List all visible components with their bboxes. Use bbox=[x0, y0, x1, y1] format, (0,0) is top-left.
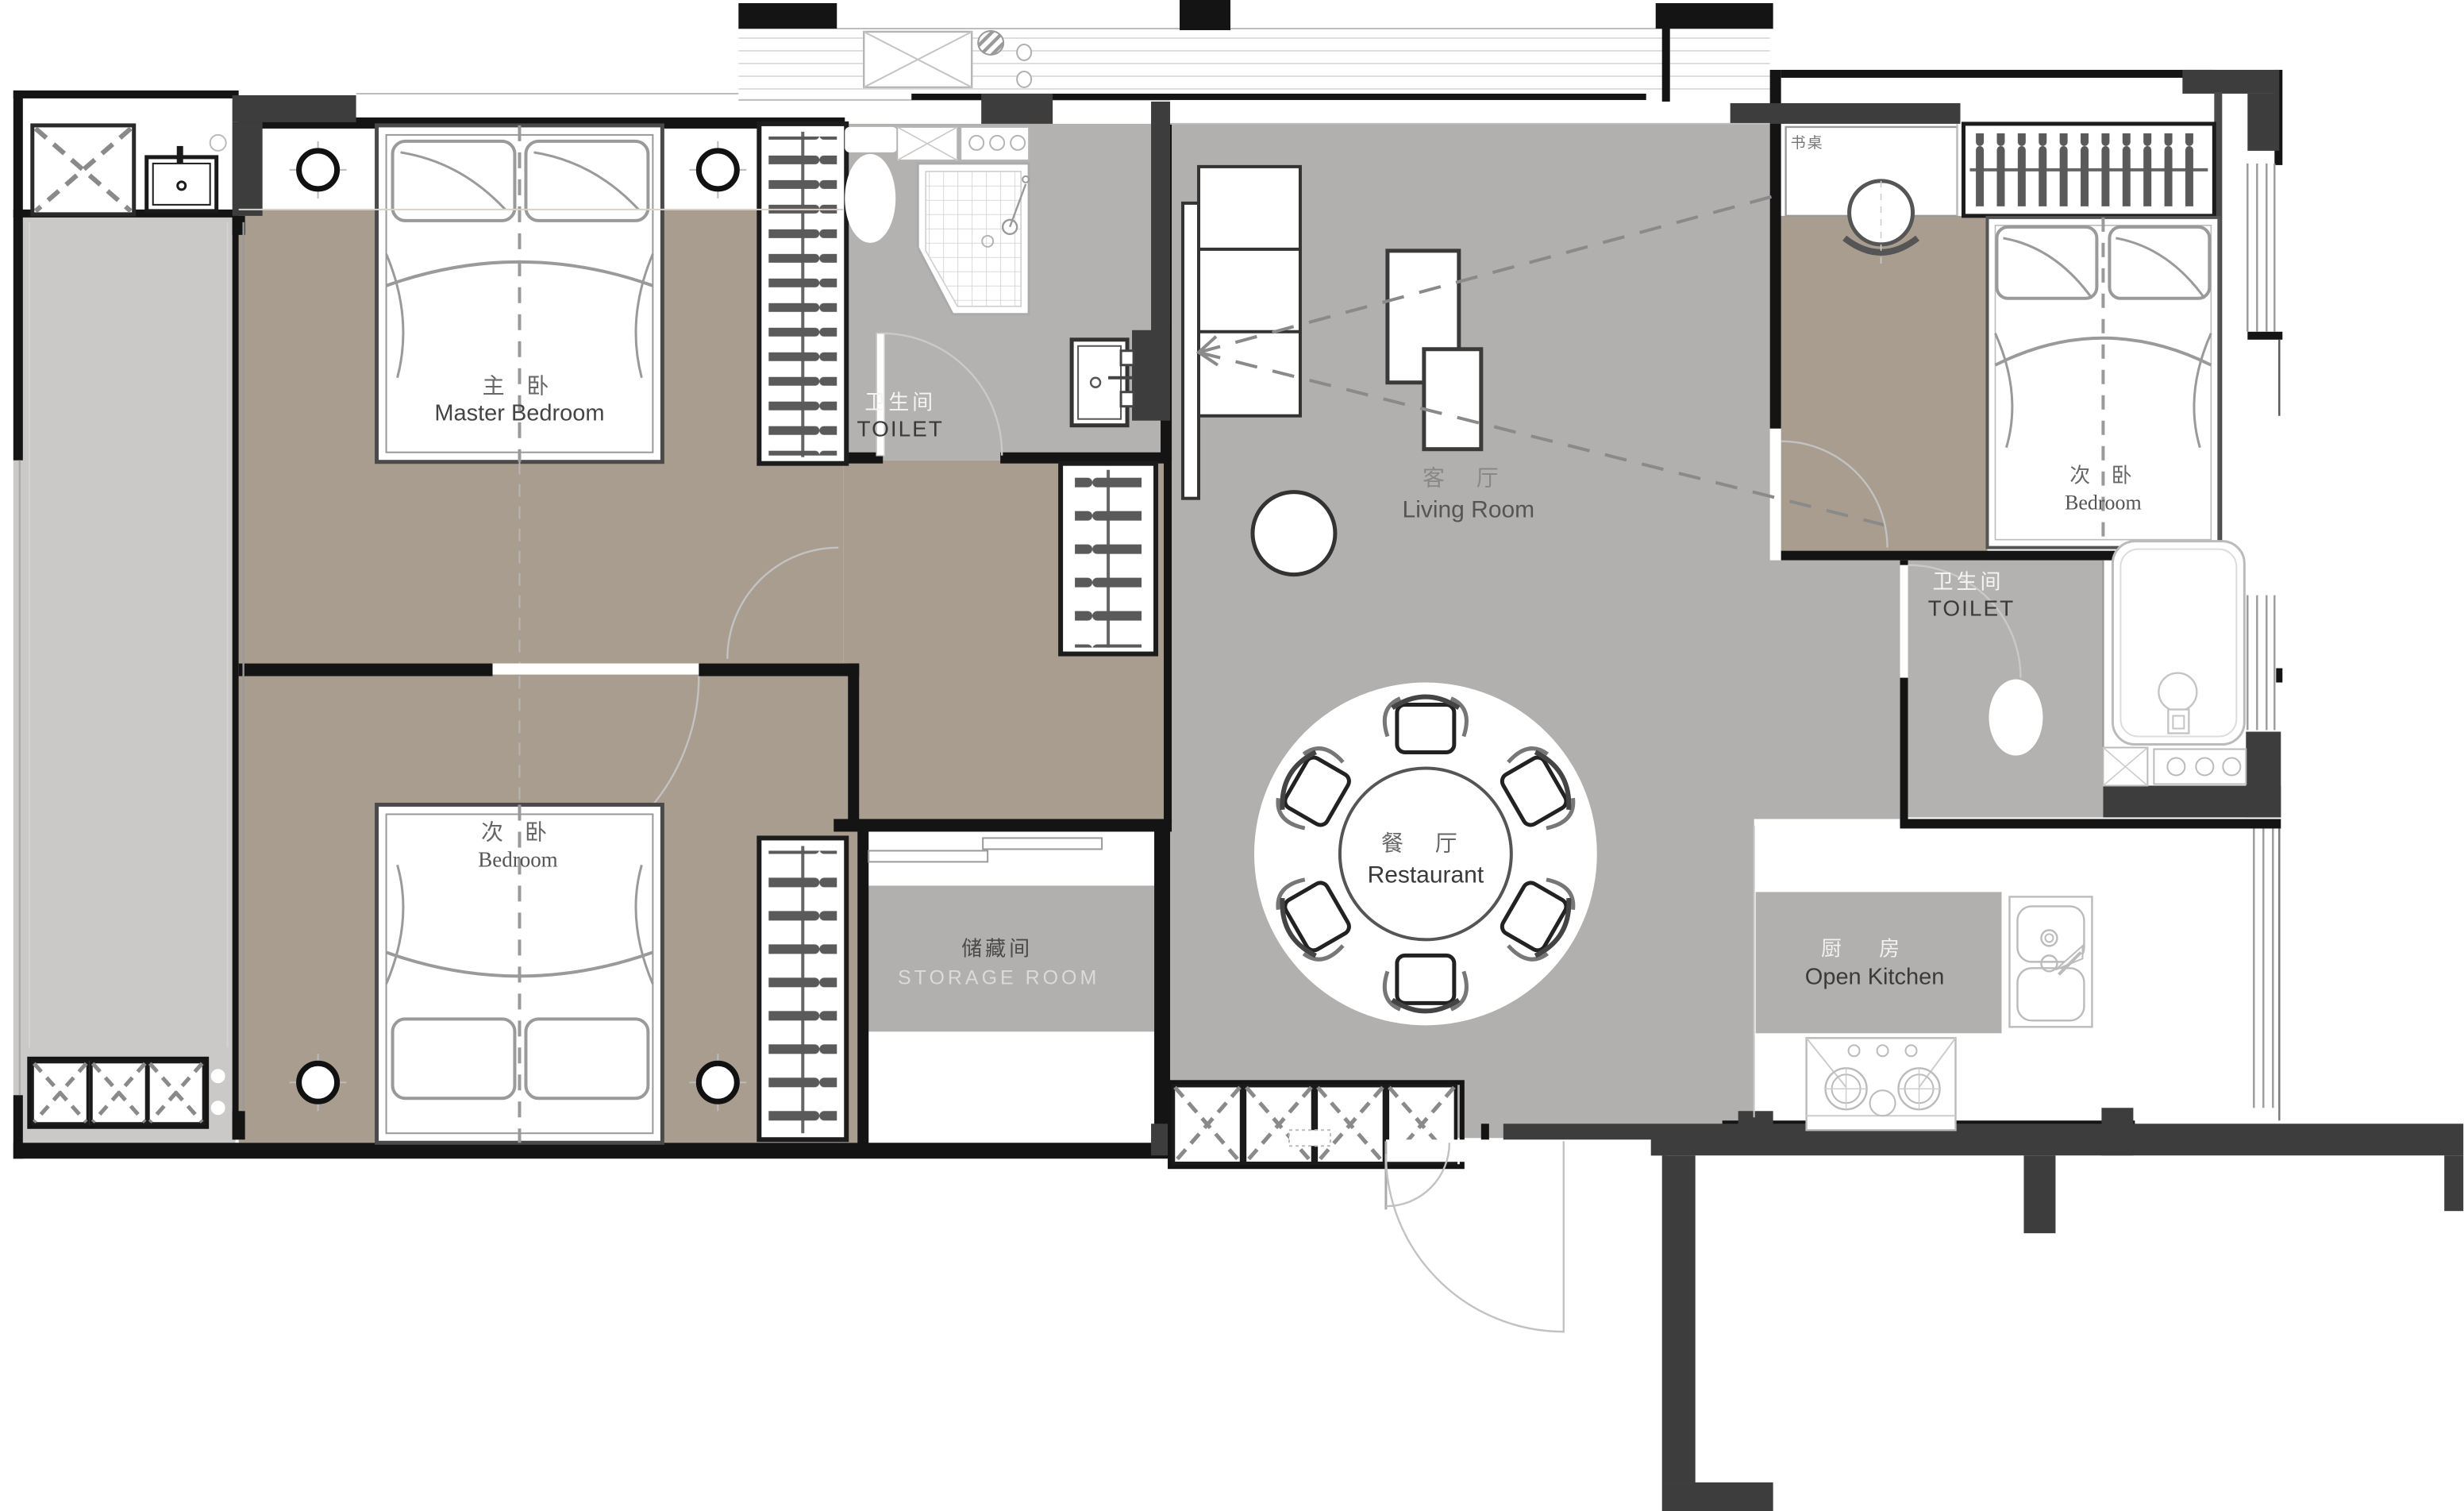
floor-plan-canvas: 主 卧 Master Bedroom 次 卧 bbox=[0, 0, 2464, 1511]
kitchen-label-zh: 厨 房 bbox=[1821, 936, 1915, 960]
kitchen-label-floor bbox=[1756, 892, 2002, 1033]
pillow-icon bbox=[1996, 227, 2096, 299]
washing-machine-icon bbox=[978, 31, 1031, 87]
master-label-zh: 主 卧 bbox=[483, 374, 557, 399]
pillow-icon bbox=[526, 1019, 648, 1098]
toilet1-label-zh: 卫生间 bbox=[864, 391, 936, 414]
kitchen-label-en: Open Kitchen bbox=[1805, 964, 1945, 989]
bedroom3-label-en: Bedroom bbox=[2065, 491, 2142, 515]
living-label-zh: 客 厅 bbox=[1423, 466, 1511, 491]
kitchen: 厨 房 Open Kitchen bbox=[1754, 825, 2092, 1130]
toilet-bowl-icon bbox=[845, 127, 897, 243]
bedroom2-wardrobe-icon bbox=[759, 838, 846, 1139]
laundry-cabinet-icon bbox=[33, 125, 134, 214]
master-label-en: Master Bedroom bbox=[434, 401, 604, 426]
walkway-cabinet-icon bbox=[864, 32, 972, 87]
storage-label-zh: 储藏间 bbox=[961, 936, 1033, 960]
entry-opening bbox=[1386, 1139, 1651, 1162]
bedroom2-label-zh: 次 卧 bbox=[481, 819, 555, 845]
hall-wardrobe-icon bbox=[1061, 464, 1156, 654]
bedroom3-floor bbox=[1781, 216, 1988, 551]
sliding-door-leaf bbox=[983, 838, 1102, 849]
toilet-bowl-icon bbox=[1989, 680, 2042, 756]
pillow-icon bbox=[393, 1019, 515, 1098]
dining-label-zh: 餐 厅 bbox=[1381, 831, 1470, 855]
basin-icon bbox=[1072, 340, 1134, 426]
dining-label-en: Restaurant bbox=[1368, 862, 1484, 888]
toilet1-label-en: TOILET bbox=[857, 417, 944, 441]
entry-door-arc bbox=[1386, 1141, 1564, 1332]
sliding-door-leaf bbox=[868, 850, 988, 862]
pillow-icon bbox=[2109, 227, 2209, 299]
gas-stove-icon bbox=[1807, 1038, 1956, 1130]
bedroom2-label-en: Bedroom bbox=[478, 847, 557, 871]
bath-vanity-icon bbox=[2103, 748, 2246, 786]
dining-area: 餐 厅 Restaurant bbox=[1254, 683, 1597, 1026]
side-table-icon bbox=[1253, 492, 1335, 575]
living-label-en: Living Room bbox=[1403, 497, 1535, 523]
bedroom3-label-zh: 次 卧 bbox=[2069, 464, 2139, 488]
kitchen-sink-icon bbox=[2009, 896, 2092, 1027]
door-mat bbox=[1289, 1130, 1330, 1146]
balcony-floor bbox=[13, 216, 236, 1143]
toilet2-label-zh: 卫生间 bbox=[1933, 570, 2004, 594]
desk-label: 书桌 bbox=[1791, 134, 1824, 152]
bathtub-icon bbox=[2112, 542, 2244, 745]
balcony-cabinets bbox=[29, 1058, 225, 1127]
storage-label-en: STORAGE ROOM bbox=[898, 966, 1099, 989]
coffee-table-icon bbox=[1424, 349, 1481, 449]
toilet2-label-en: TOILET bbox=[1928, 596, 2015, 621]
master-wardrobe-icon bbox=[759, 124, 846, 464]
bedroom3-wardrobe-icon bbox=[1964, 124, 2215, 216]
shower-shelf-icon bbox=[897, 127, 1029, 160]
